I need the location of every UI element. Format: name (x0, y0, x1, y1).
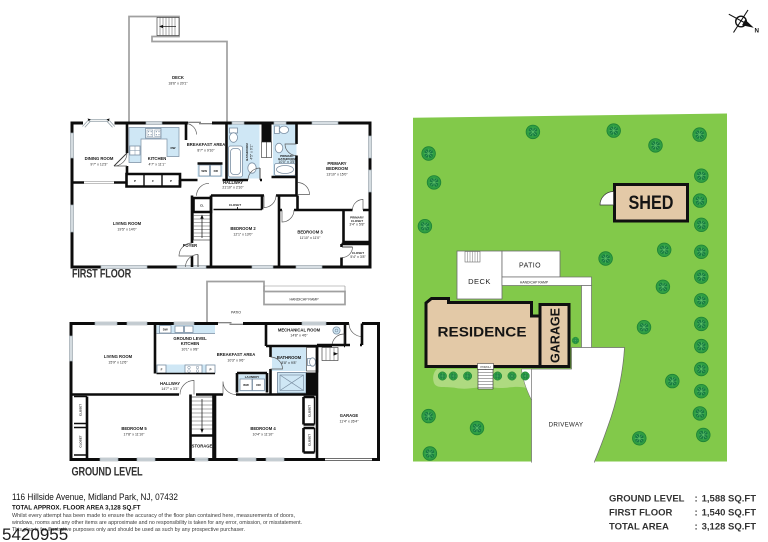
svg-text:P: P (170, 179, 172, 183)
svg-text:LIVING ROOM: LIVING ROOM (113, 221, 142, 226)
svg-text:PATIO: PATIO (519, 263, 541, 270)
svg-text:F: F (152, 179, 154, 183)
svg-text:17'8" x 11'10": 17'8" x 11'10" (124, 433, 146, 437)
svg-text:21'10" x 2'10": 21'10" x 2'10" (222, 186, 244, 190)
svg-text:CLOSET: CLOSET (79, 435, 83, 447)
svg-text:1,588 SQ.FT: 1,588 SQ.FT (702, 494, 757, 505)
svg-text:LIVING ROOM: LIVING ROOM (104, 354, 133, 359)
svg-text:F: F (161, 367, 163, 371)
svg-text:3'4" x 5'8": 3'4" x 5'8" (349, 223, 365, 227)
svg-text:5'4" x 3'8": 5'4" x 3'8" (350, 255, 366, 259)
svg-text:DRIVEWAY: DRIVEWAY (549, 422, 584, 429)
svg-text:BREAKFAST AREA: BREAKFAST AREA (187, 142, 225, 147)
svg-text:SHED: SHED (629, 193, 674, 214)
svg-text:CL: CL (200, 204, 204, 208)
svg-text:8'7" x 9'10": 8'7" x 9'10" (197, 149, 215, 153)
svg-text:BATHROOM: BATHROOM (245, 143, 249, 161)
svg-text:WW: WW (201, 169, 207, 173)
svg-text:1,540 SQ.FT: 1,540 SQ.FT (702, 508, 757, 519)
svg-text:14'7" x 3'3": 14'7" x 3'3" (161, 387, 179, 391)
svg-text:DW: DW (171, 146, 176, 150)
svg-text:BEDROOM 5: BEDROOM 5 (121, 426, 147, 431)
svg-text:DW: DW (163, 327, 168, 331)
svg-text:CLOSET: CLOSET (308, 434, 312, 446)
svg-text:DECK: DECK (468, 277, 491, 286)
svg-text:LAUNDRY: LAUNDRY (245, 375, 260, 379)
svg-text::: : (695, 508, 698, 519)
svg-text:HANDICAP RAMP: HANDICAP RAMP (520, 281, 549, 285)
svg-text:15'9" x 12'6": 15'9" x 12'6" (108, 361, 128, 365)
svg-text:P: P (134, 179, 136, 183)
svg-text:BEDROOM 3: BEDROOM 3 (297, 230, 323, 235)
svg-text:DECK: DECK (172, 75, 184, 80)
svg-text:8'8" x 9'8": 8'8" x 9'8" (281, 361, 297, 365)
svg-text:13'10" x 15'0": 13'10" x 15'0" (326, 173, 348, 177)
svg-text:GARAGE: GARAGE (340, 413, 359, 418)
svg-text:DINING ROOM: DINING ROOM (85, 156, 114, 161)
svg-text:HANDICAP RAMP: HANDICAP RAMP (289, 298, 319, 302)
svg-text:FIRST FLOOR: FIRST FLOOR (609, 508, 672, 519)
svg-text:3,128 SQ.FT: 3,128 SQ.FT (702, 522, 757, 533)
svg-text:WW: WW (243, 383, 249, 387)
svg-text:BEDROOM 4: BEDROOM 4 (250, 426, 276, 431)
svg-text:HALLWAY: HALLWAY (160, 381, 180, 386)
svg-text:BEDROOM: BEDROOM (326, 166, 348, 171)
svg-text:10'3" x 9'6": 10'3" x 9'6" (227, 359, 245, 363)
svg-text:10'0" x 3'5": 10'0" x 3'5" (278, 160, 296, 164)
svg-text:MECHANICAL ROOM: MECHANICAL ROOM (278, 328, 321, 333)
svg-text:19'5" x 14'0": 19'5" x 14'0" (117, 228, 137, 232)
svg-text:CLOSET: CLOSET (229, 203, 241, 207)
svg-text:4'7" x 11'1": 4'7" x 11'1" (149, 163, 167, 167)
svg-text:11'4" x 26'4": 11'4" x 26'4" (340, 420, 360, 424)
svg-text:KITCHEN: KITCHEN (181, 341, 200, 346)
svg-text:4'5" x 9'1": 4'5" x 9'1" (250, 144, 254, 160)
svg-text:STORAGE: STORAGE (192, 444, 213, 449)
svg-text:9'7" x 12'3": 9'7" x 12'3" (90, 163, 108, 167)
svg-text:18'6" x 20'1": 18'6" x 20'1" (168, 82, 188, 86)
svg-text:10'1" x 9'8": 10'1" x 9'8" (181, 348, 199, 352)
svg-text:5420955: 5420955 (2, 525, 68, 542)
svg-text::: : (695, 494, 698, 505)
svg-text::: : (695, 522, 698, 533)
svg-text:FOYER: FOYER (183, 243, 197, 248)
svg-text:116 Hillside Avenue, Midland P: 116 Hillside Avenue, Midland Park, NJ, 0… (12, 492, 178, 502)
svg-text:GROUND LEVEL: GROUND LEVEL (72, 467, 143, 479)
svg-text:TOTAL APPROX. FLOOR AREA 3,128: TOTAL APPROX. FLOOR AREA 3,128 SQ.FT (12, 505, 141, 512)
svg-text:BEDROOM 2: BEDROOM 2 (230, 226, 256, 231)
svg-text:14'8" x 4'6": 14'8" x 4'6" (290, 334, 308, 338)
svg-text:10'4" x 11'10": 10'4" x 11'10" (253, 433, 275, 437)
svg-text:CLOSET: CLOSET (308, 405, 312, 417)
svg-text:P: P (209, 367, 211, 371)
svg-text:GARAGE: GARAGE (549, 308, 563, 363)
svg-text:Whilst every attempt has been: Whilst every attempt has been made to en… (12, 513, 295, 519)
svg-text:GROUND LEVEL: GROUND LEVEL (609, 494, 685, 505)
svg-text:12'1" x 13'0": 12'1" x 13'0" (233, 233, 253, 237)
svg-text:PORCH: PORCH (480, 365, 490, 369)
svg-text:PATIO: PATIO (231, 311, 241, 315)
svg-text:HALLWAY: HALLWAY (223, 180, 243, 185)
svg-text:BATHROOM: BATHROOM (277, 355, 302, 360)
svg-text:KITCHEN: KITCHEN (148, 156, 167, 161)
svg-text:CLOSET: CLOSET (79, 404, 83, 416)
svg-text:RESIDENCE: RESIDENCE (438, 324, 527, 340)
svg-text:11'10" x 11'0": 11'10" x 11'0" (300, 236, 321, 240)
svg-text:FIRST FLOOR: FIRST FLOOR (72, 269, 132, 281)
svg-text:N: N (755, 28, 760, 35)
svg-text:BREAKFAST AREA: BREAKFAST AREA (217, 352, 255, 357)
svg-text:TOTAL AREA: TOTAL AREA (609, 522, 669, 533)
